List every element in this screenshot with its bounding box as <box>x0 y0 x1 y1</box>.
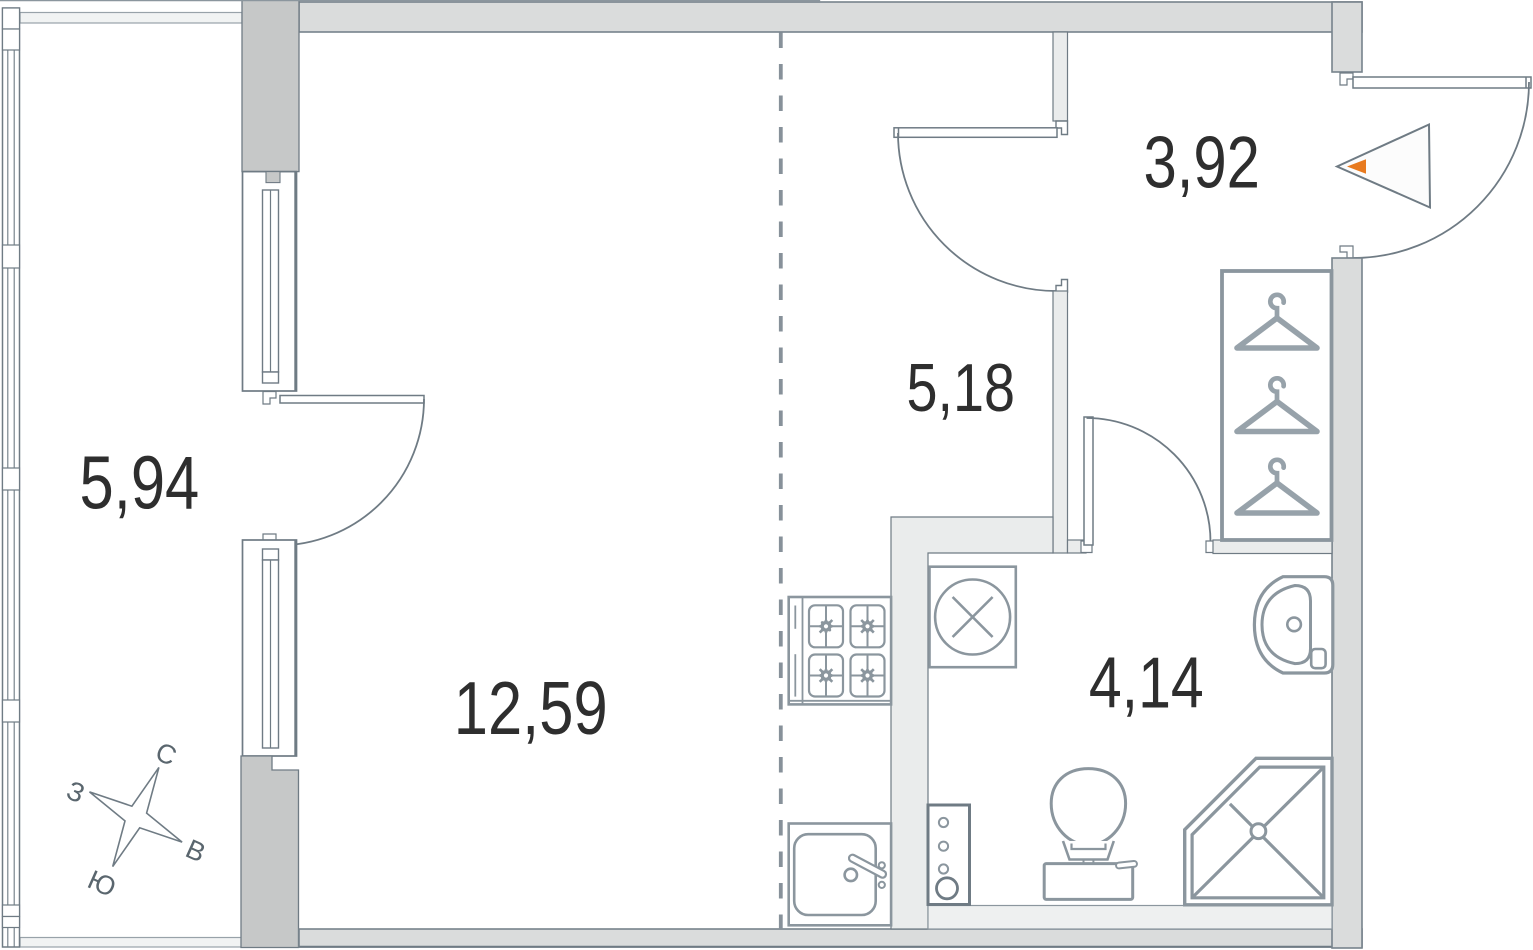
svg-text:5,18: 5,18 <box>907 351 1016 426</box>
svg-text:5,94: 5,94 <box>80 441 200 525</box>
svg-text:12,59: 12,59 <box>454 666 608 750</box>
svg-text:4,14: 4,14 <box>1089 642 1204 723</box>
svg-text:3,92: 3,92 <box>1143 123 1260 204</box>
